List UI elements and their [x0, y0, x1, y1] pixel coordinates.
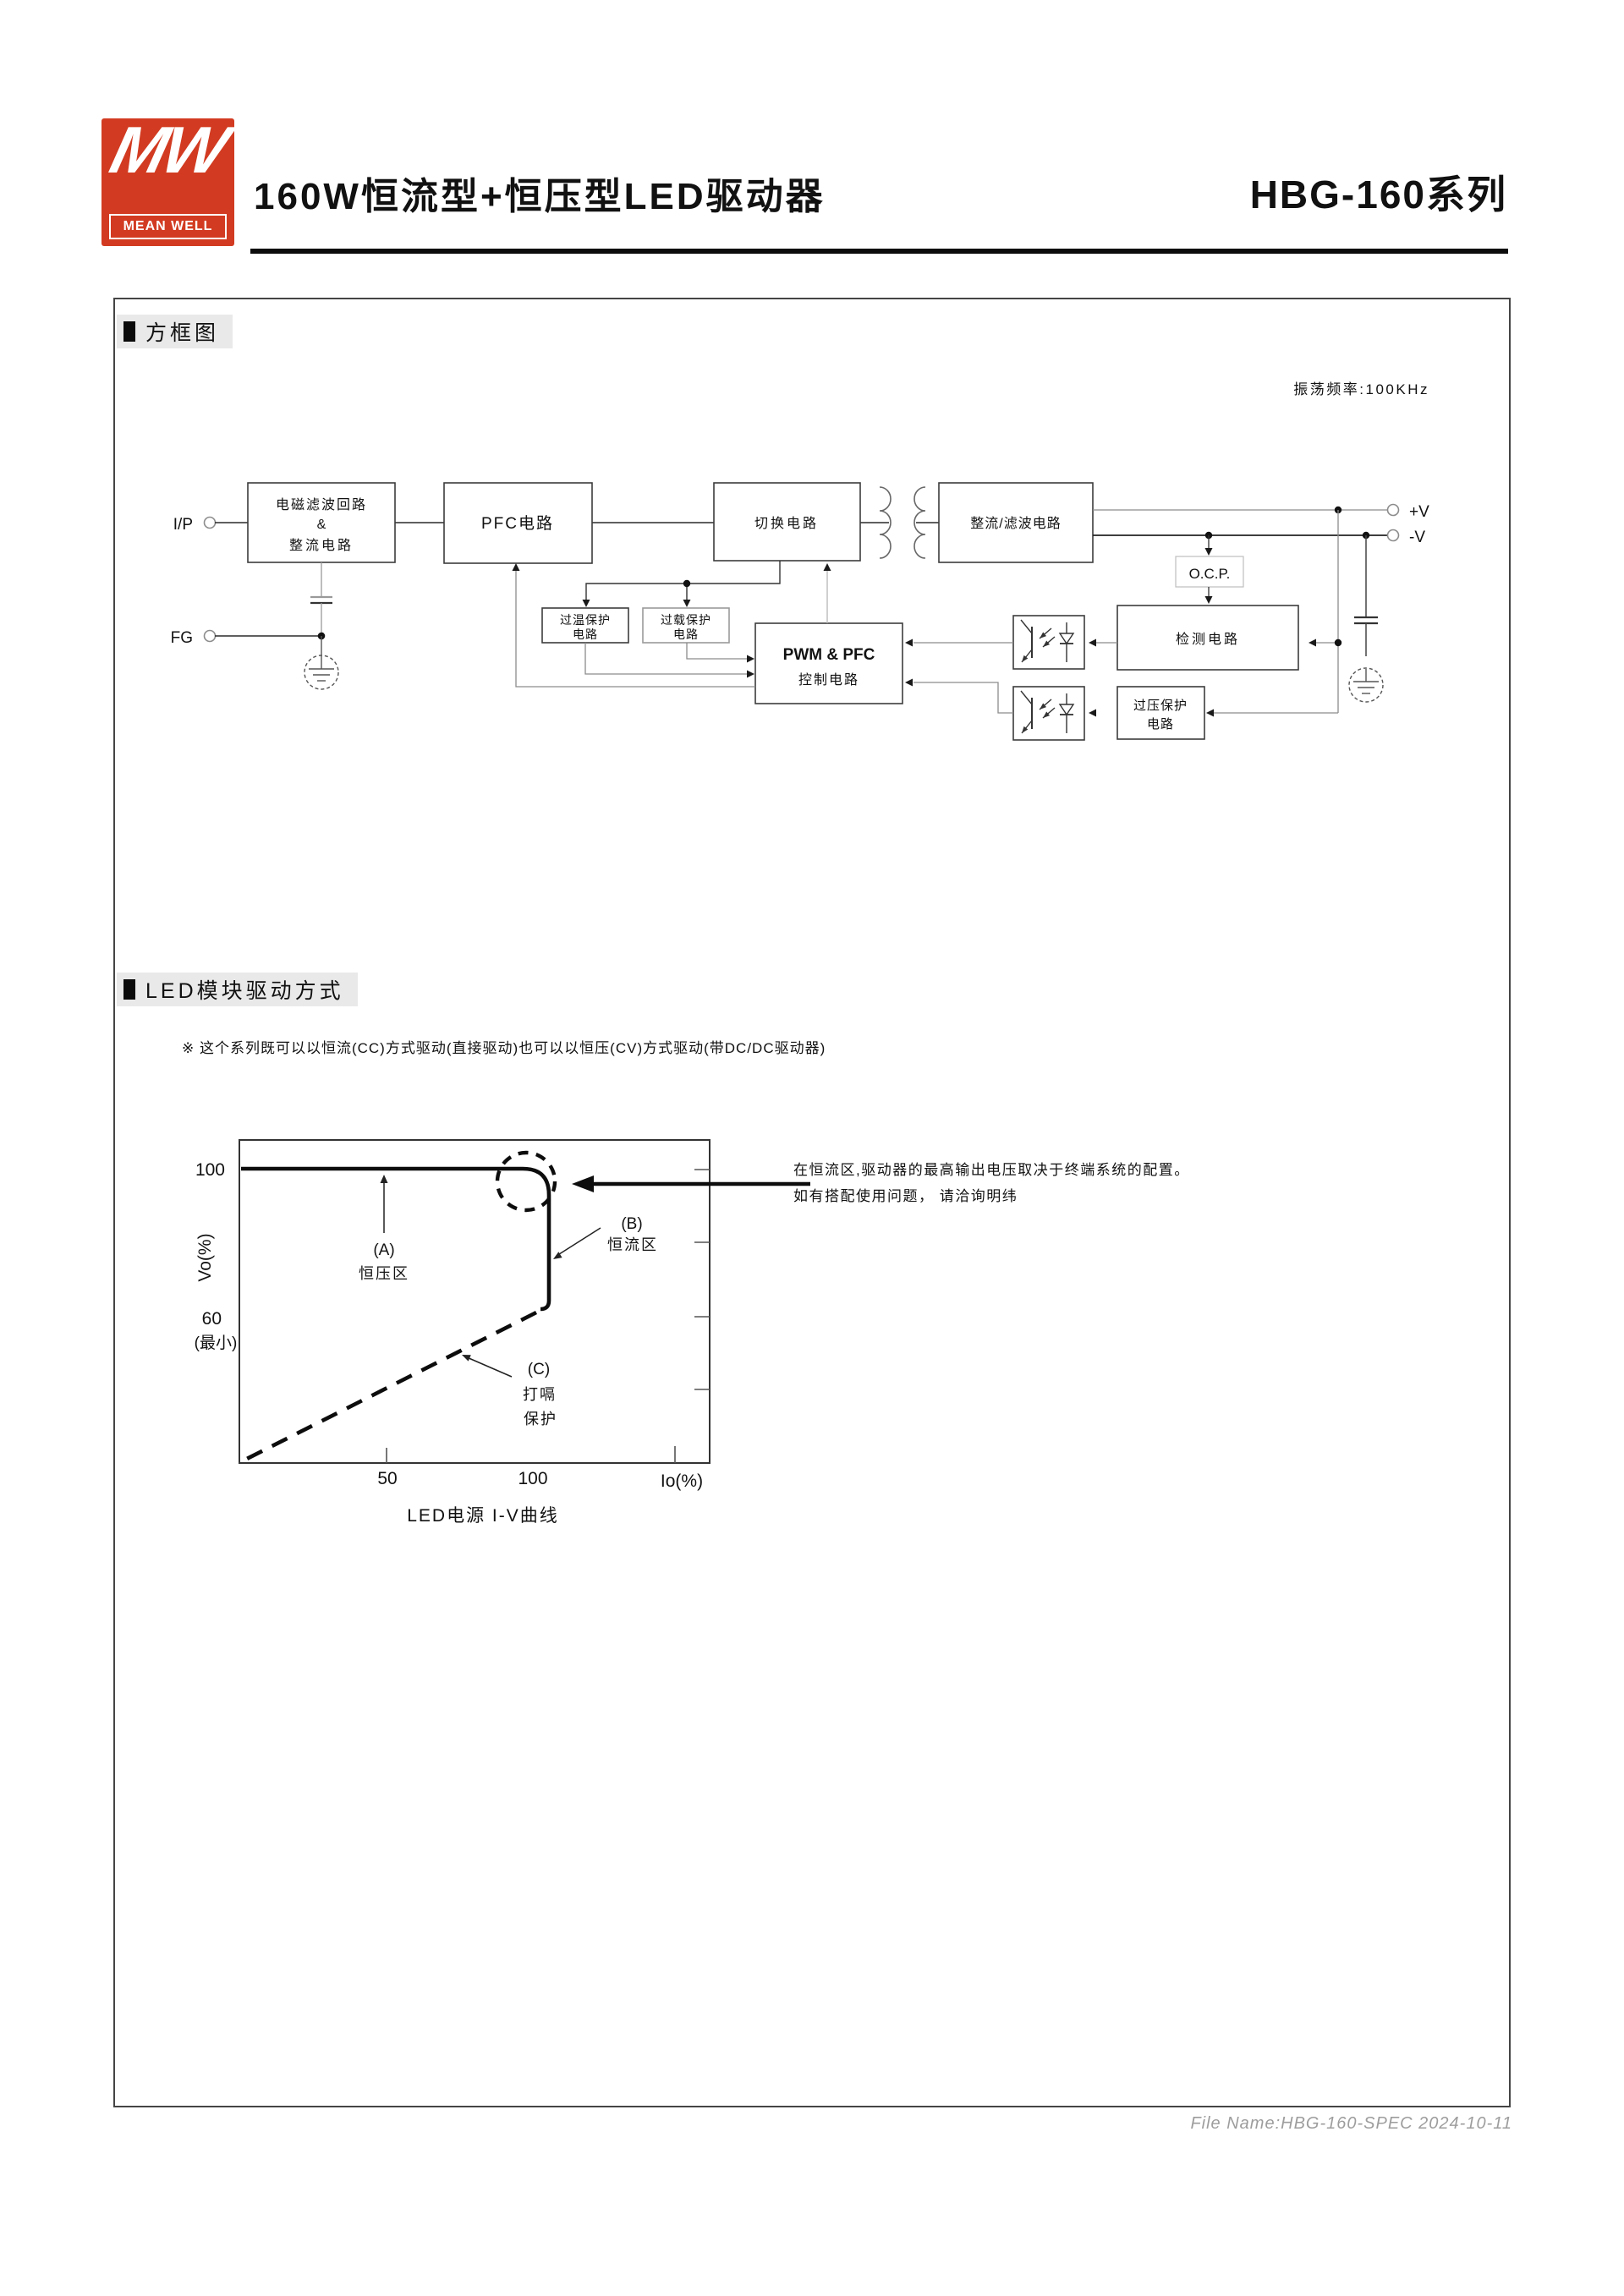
hiccup-protection-curve — [244, 1312, 536, 1460]
v-plus-label: +V — [1409, 503, 1429, 521]
x-tick-50: 50 — [377, 1469, 397, 1488]
emi-label-2: & — [317, 518, 326, 532]
v-minus-terminal-icon — [1388, 530, 1399, 541]
olp-label-2: 电路 — [673, 627, 699, 641]
feedback-lines — [516, 510, 1338, 713]
datasheet-page: MW MEAN WELL 160W恒流型+恒压型LED驱动器 HBG-160系列… — [0, 0, 1624, 2296]
region-a-tag: (A) — [373, 1241, 394, 1259]
otp-label-2: 电路 — [573, 627, 598, 641]
block-diagram: 振荡频率:100KHz I/P FG — [171, 381, 1429, 740]
input-terminal-icon — [205, 518, 216, 529]
region-b-tag: (B) — [621, 1215, 642, 1233]
input-terminal-label: I/P — [173, 516, 193, 534]
protection-sense-rail — [586, 561, 780, 602]
minus-v-branch — [1349, 535, 1383, 702]
pwm-label-1: PWM & PFC — [783, 646, 875, 664]
olp-label-1: 过载保护 — [661, 613, 711, 627]
y-tick-60: 60 — [202, 1309, 222, 1329]
y-axis-label: Vo(%) — [195, 1233, 215, 1281]
switching-label: 切换电路 — [754, 516, 819, 531]
emi-label-3: 整流电路 — [289, 538, 354, 553]
cv-cc-curve — [241, 1169, 549, 1309]
v-minus-label: -V — [1409, 529, 1425, 546]
y-tick-100: 100 — [195, 1160, 225, 1180]
ocp-label: O.C.P. — [1189, 566, 1231, 582]
oscillation-frequency-label: 振荡频率:100KHz — [1293, 381, 1429, 397]
region-a-name: 恒压区 — [359, 1265, 409, 1282]
ovp-label-2: 电路 — [1147, 717, 1174, 732]
fg-terminal-label: FG — [171, 629, 193, 647]
region-c-tag: (C) — [528, 1361, 550, 1378]
otp-label-1: 过温保护 — [560, 613, 611, 627]
v-plus-terminal-icon — [1388, 505, 1399, 516]
pfc-label: PFC电路 — [481, 514, 554, 533]
output-rails: +V -V — [1093, 503, 1429, 546]
detection-label: 检测电路 — [1176, 632, 1240, 647]
earth-ground-icon — [1349, 668, 1383, 702]
chart-caption: LED电源 I-V曲线 — [407, 1506, 559, 1526]
earth-ground-icon — [304, 655, 338, 689]
ovp-label-1: 过压保护 — [1133, 699, 1188, 713]
y-tick-min: (最小) — [195, 1334, 238, 1352]
x-axis-label: Io(%) — [661, 1471, 703, 1491]
region-b-name: 恒流区 — [607, 1236, 658, 1253]
rectifier-filter-label: 整流/滤波电路 — [970, 516, 1061, 531]
annotation-arrows — [384, 1181, 601, 1377]
optocoupler-icon — [1020, 691, 1073, 735]
x-tick-100: 100 — [518, 1469, 547, 1488]
emi-label-1: 电磁滤波回路 — [276, 497, 367, 512]
optocoupler-icon — [1020, 620, 1073, 664]
iv-curve-chart: 100 60 (最小) Vo(%) 50 100 Io(%) (A) 恒压区 (… — [195, 1140, 810, 1526]
fg-branch — [304, 562, 338, 689]
fg-terminal-icon — [205, 631, 216, 642]
line-art-layer: 振荡频率:100KHz I/P FG — [0, 0, 1624, 2296]
region-c-name-1: 打嗝 — [523, 1386, 557, 1403]
region-c-name-2: 保护 — [524, 1411, 557, 1427]
plot-area — [239, 1140, 710, 1463]
pwm-label-2: 控制电路 — [798, 672, 859, 688]
